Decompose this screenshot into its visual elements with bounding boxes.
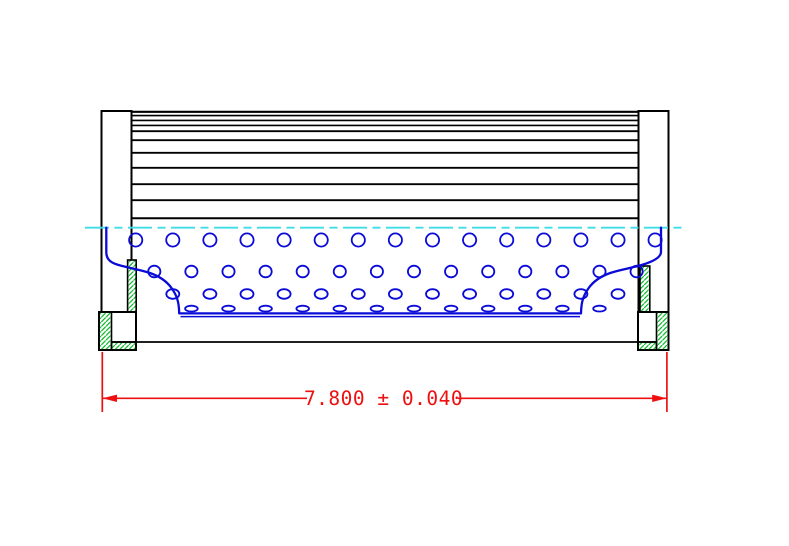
perforation-hole — [334, 306, 347, 312]
perforation-hole — [500, 233, 513, 246]
perforation-hole — [185, 266, 197, 278]
perforation-hole — [278, 233, 291, 246]
perforation-hole — [352, 233, 365, 246]
perforation-hole — [166, 233, 179, 246]
perforation-hole — [463, 233, 476, 246]
perforation-hole — [612, 289, 625, 299]
perforation-hole — [203, 233, 216, 246]
perforation-hole — [185, 306, 198, 312]
perforation-hole — [203, 289, 216, 299]
perforation-hole — [222, 266, 234, 278]
perforation-hole — [426, 233, 439, 246]
left-arrowhead — [102, 395, 117, 402]
perforation-hole — [445, 266, 457, 278]
perforation-hole — [315, 289, 328, 299]
perforation-hole — [352, 289, 365, 299]
left-base-step — [99, 312, 136, 350]
perforation-hole — [408, 266, 420, 278]
perforation-hole — [260, 266, 272, 278]
perforation-hole — [426, 289, 439, 299]
right-base-step — [638, 312, 669, 350]
perforation-hole — [482, 306, 495, 312]
perforation-hole — [519, 266, 531, 278]
perforation-hole — [297, 266, 309, 278]
dimension-text: 7.800 ± 0.040 — [304, 387, 463, 410]
pleat-lines — [132, 112, 639, 218]
perforation-hole — [556, 266, 568, 278]
perforation-hole — [500, 289, 513, 299]
perforation-hole — [259, 306, 272, 312]
perforation-hole — [389, 233, 402, 246]
perforation-hole — [371, 306, 384, 312]
perforation-hole — [574, 233, 587, 246]
perforation-hole — [556, 306, 569, 312]
perforation-hole — [240, 233, 253, 246]
technical-drawing-svg: 7.800 ± 0.040 — [0, 0, 789, 546]
right-arrowhead — [652, 395, 667, 402]
perforation-hole — [278, 289, 291, 299]
perforation-hole — [371, 266, 383, 278]
perforation-hole — [315, 233, 328, 246]
perforation-hole — [593, 306, 606, 312]
dimension: 7.800 ± 0.040 — [102, 352, 667, 412]
perforation-hole — [611, 233, 624, 246]
perforation-hole — [334, 266, 346, 278]
perforation-hole — [537, 233, 550, 246]
perforation-hole — [482, 266, 494, 278]
perforation-hole — [519, 306, 532, 312]
perforation-hole — [222, 306, 235, 312]
perforation-hole — [408, 306, 421, 312]
perforation-hole — [537, 289, 550, 299]
filter-element-drawing: 7.800 ± 0.040 — [0, 0, 789, 546]
perforation-hole — [463, 289, 476, 299]
perforation-hole — [389, 289, 402, 299]
perforation-hole — [241, 289, 254, 299]
perforation-hole — [445, 306, 458, 312]
right-seal-hatch — [640, 266, 650, 312]
perforation-hole — [296, 306, 309, 312]
